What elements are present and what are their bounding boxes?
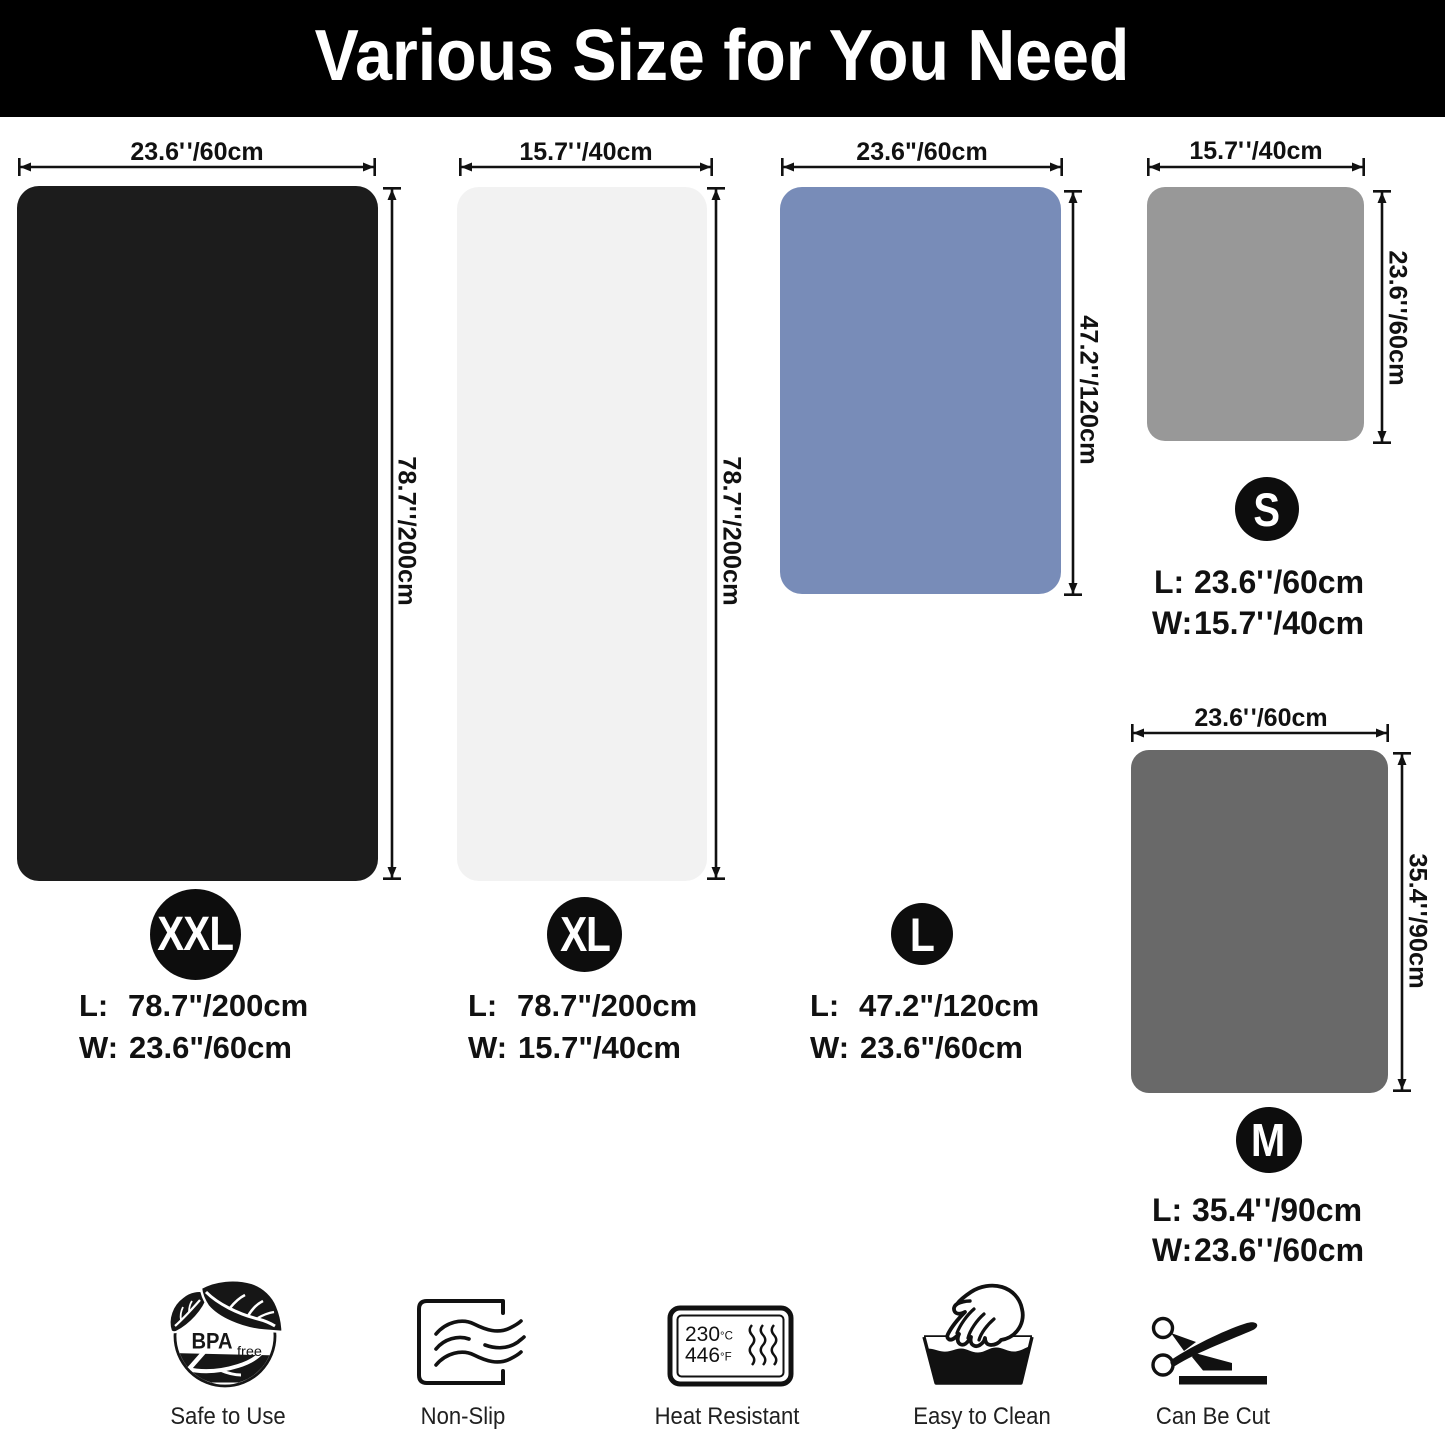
svg-text:230°C: 230°C [685, 1323, 733, 1346]
svg-text:free: free [237, 1343, 262, 1359]
svg-text:446°F: 446°F [685, 1344, 732, 1367]
svg-text:BPA: BPA [192, 1329, 233, 1354]
